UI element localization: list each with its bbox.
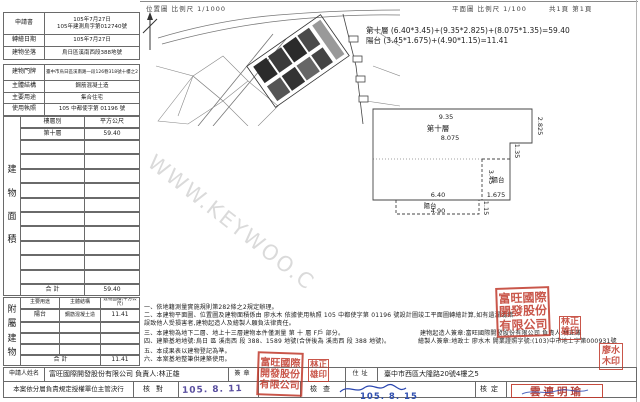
north-arrow-icon [143,12,157,50]
area-col-header: 平方公尺 [84,116,140,128]
annex-total-label: 合 計 [20,355,101,366]
page-count-label: 共1頁 第1頁 [549,3,592,13]
application-value: 105年7月27日 105年建測烏字第012740號 [44,12,140,35]
empty-row [84,226,140,240]
application-label: 申請書 [3,12,45,35]
date-stamp-received: 105. 8. 11 [182,384,243,396]
dim-2825: 2.825 [536,117,544,136]
page-right-edge [636,0,637,402]
empty-row [20,198,85,212]
note-1: 一、依地籍測量實施規則第282條之2規定辦理。 [144,304,516,312]
approver-scribble [520,386,590,398]
application-case-number: 105年建測烏字第012740號 [57,24,127,30]
empty-row [20,154,85,168]
floor-total-value: 59.40 [84,284,140,296]
floor-plan: 9.35 第十層 8.075 2.825 1.35 3.45 陽台 1.675 … [358,84,563,234]
annex-row-use: 陽台 [20,309,60,322]
door-plate-label: 建物門牌 [3,64,45,81]
empty-row [100,333,140,344]
top-rule [140,1,638,2]
delegation-statement: 本案依分層負責規定授權單位主管決行 [3,381,134,398]
empty-row [84,255,140,269]
annex-col-structure: 主體結構 [59,297,101,309]
empty-row [84,183,140,197]
empty-row [59,333,101,344]
floor-label: 第十層 [427,123,450,133]
dim-935: 9.35 [439,113,453,121]
signature-scribble [338,382,418,398]
empty-row [84,241,140,255]
empty-row [20,212,85,226]
lin-cheng-hsiung-seal-upper: 林正雄印 [559,316,581,340]
empty-row [100,322,140,333]
building-footprint [247,15,349,108]
dim-115: 1.15 [482,201,490,215]
empty-row [20,322,60,333]
use-permit-value: 105 中都使字第 01196 號 [44,103,140,116]
empty-row [20,255,85,269]
building-site-value: 烏日區溪南西段388地號 [44,46,140,60]
applicant-label: 申請人姓名 [3,367,45,382]
empty-row [59,344,101,355]
floor-plan-scale-label: 平面圖 比例尺 1/100 [452,3,527,13]
building-site-label: 建物坐落 [3,46,45,60]
empty-row [20,344,60,355]
company-seal-stamp-upper: 富旺國際開發股份有限公司 [495,286,551,338]
dim-135: 1.35 [513,144,521,158]
dim-490: 4.90 [431,207,445,215]
floor-row-name: 第十層 [20,128,85,140]
door-plate-value: 臺中市烏日區溪南路一段126巷318號十樓之2 [44,64,140,81]
applicant-value: 富旺國際開發股份有限公司 負責人:林正雄 [44,367,229,382]
floor-col-header: 樓層別 [20,116,85,128]
annex-vertical-label: 附屬建物 [3,297,21,366]
annex-total-value: 11.41 [100,355,140,366]
note-2: 二、本建物平面圖、位置圖及建物面積係由 廖水木 依據使用執照 105 中都使字第… [144,312,516,328]
note-3: 三、本建物為地下二層、地上十三層建物本件僅測量 第 十 層 F戶 部分。 [144,330,414,338]
empty-row [20,183,85,197]
floor-area-vertical-label: 建物面積 [3,116,21,296]
approve-label: 核定 [475,381,507,398]
empty-row [20,140,85,154]
empty-row [20,241,85,255]
empty-row [59,322,101,333]
dim-1675: 1.675 [487,191,506,199]
address-label: 住址 [345,367,378,382]
dim-8075: 8.075 [441,134,460,142]
empty-row [84,270,140,284]
empty-row [20,226,85,240]
empty-row [84,212,140,226]
dim-640: 6.40 [431,191,445,199]
liao-shui-mu-seal: 廖水木印 [599,343,623,370]
balcony-right-label: 陽台 [492,175,505,184]
empty-row [84,140,140,154]
empty-row [20,333,60,344]
empty-row [20,169,85,183]
watermark: WWW.KEYWOO.C [143,150,319,295]
note-4: 四、建築基地地號:烏日 區 溪南西 段 388、1589 地號(合併後為 溪南西… [144,338,414,346]
empty-row [84,169,140,183]
empty-row [84,198,140,212]
annex-col-area: 建物面積(平方公尺) [100,297,140,309]
seal-column-label: 簽章 [228,367,259,382]
annex-row-structure: 鋼筋混凝土造 [59,309,101,322]
empty-row [20,270,85,284]
annex-col-use: 主要用途 [20,297,60,309]
lin-cheng-hsiung-seal-lower: 林正雄印 [308,359,329,382]
address-value: 臺中市西區大隆路20號4樓之5 [377,367,637,382]
annex-row-area: 11.41 [100,309,140,322]
floor-row-area: 59.40 [84,128,140,140]
use-permit-label: 使用執照 [3,103,45,116]
company-seal-stamp-lower: 富旺國際開發股份有限公司 [256,351,304,397]
check-label: 核對 [133,381,179,398]
survey-document-page: 位置圖 比例尺 1/1000 平面圖 比例尺 1/100 共1頁 第1頁 WWW… [0,0,640,402]
empty-row [84,154,140,168]
floor-total-label: 合 計 [20,284,85,296]
empty-row [100,344,140,355]
floor-outline [373,109,532,200]
